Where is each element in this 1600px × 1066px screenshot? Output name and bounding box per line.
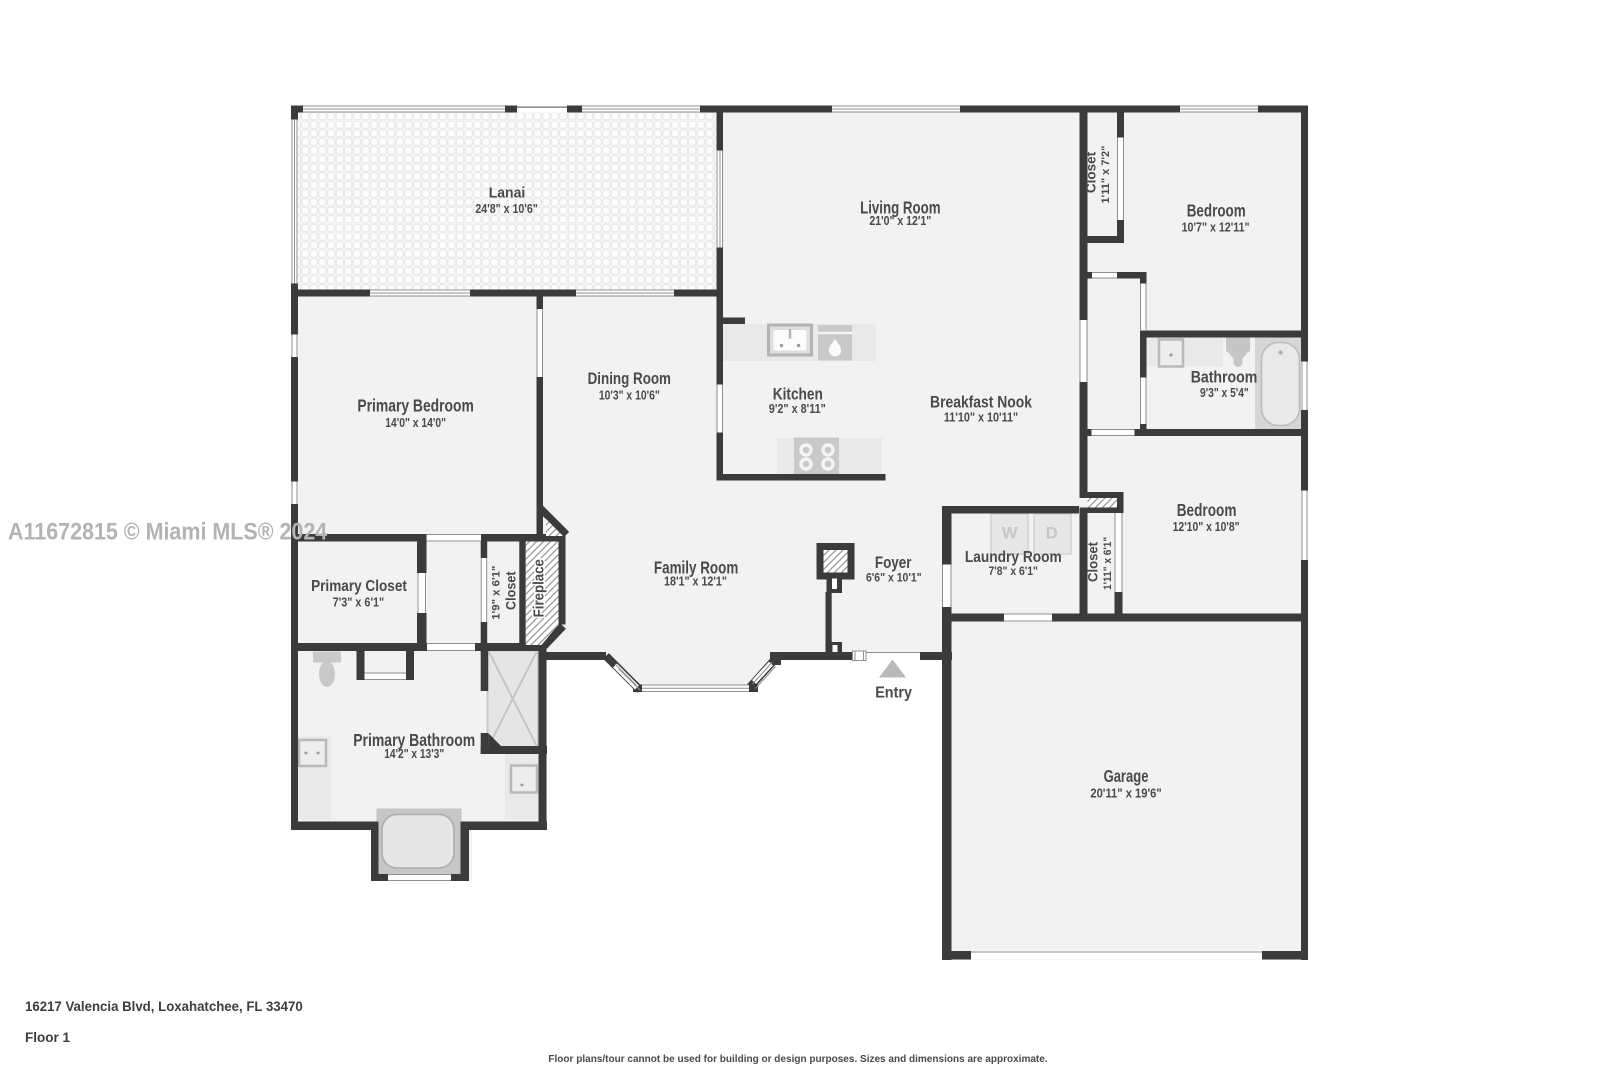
svg-text:Fireplace: Fireplace: [531, 559, 548, 617]
svg-text:20'11" x 19'6": 20'11" x 19'6": [1090, 786, 1161, 801]
svg-text:Floor 1: Floor 1: [25, 1030, 70, 1045]
svg-text:Bedroom: Bedroom: [1177, 501, 1237, 520]
svg-text:18'1" x 12'1": 18'1" x 12'1": [664, 575, 727, 589]
svg-text:W: W: [1002, 525, 1018, 543]
svg-text:14'2" x 13'3": 14'2" x 13'3": [384, 748, 444, 761]
svg-text:Closet: Closet: [503, 571, 518, 610]
svg-text:12'10" x 10'8": 12'10" x 10'8": [1173, 521, 1240, 534]
svg-text:Primary Bedroom: Primary Bedroom: [357, 396, 473, 416]
svg-text:24'8" x 10'6": 24'8" x 10'6": [475, 201, 537, 216]
svg-text:7'8" x 6'1": 7'8" x 6'1": [988, 566, 1037, 579]
svg-text:Floor plans/tour cannot be use: Floor plans/tour cannot be used for buil…: [548, 1054, 1047, 1065]
svg-text:1'11" x 7'2": 1'11" x 7'2": [1100, 146, 1112, 204]
svg-text:11'10" x 10'11": 11'10" x 10'11": [944, 411, 1018, 425]
svg-text:Closet: Closet: [1085, 541, 1100, 582]
svg-text:A11672815 © Miami MLS® 2024: A11672815 © Miami MLS® 2024: [8, 517, 328, 544]
svg-text:Dining Room: Dining Room: [588, 370, 671, 389]
svg-text:Foyer: Foyer: [875, 554, 912, 573]
svg-text:7'3" x 6'1": 7'3" x 6'1": [333, 596, 385, 610]
svg-text:Bedroom: Bedroom: [1187, 202, 1246, 221]
svg-text:21'0" x 12'1": 21'0" x 12'1": [869, 215, 931, 228]
svg-text:Entry: Entry: [875, 684, 912, 702]
svg-text:Laundry Room: Laundry Room: [965, 549, 1062, 566]
svg-text:10'7" x 12'11": 10'7" x 12'11": [1182, 221, 1250, 235]
svg-text:1'11" x 6'1": 1'11" x 6'1": [1101, 537, 1113, 590]
svg-text:9'3" x 5'4": 9'3" x 5'4": [1200, 387, 1249, 400]
svg-text:Garage: Garage: [1104, 767, 1149, 786]
svg-text:9'2" x 8'11": 9'2" x 8'11": [769, 402, 826, 416]
svg-text:6'6" x 10'1": 6'6" x 10'1": [866, 572, 922, 585]
svg-text:Kitchen: Kitchen: [773, 385, 823, 404]
svg-text:Breakfast Nook: Breakfast Nook: [930, 393, 1032, 412]
svg-text:1'9" x 6'1": 1'9" x 6'1": [491, 566, 503, 620]
svg-text:16217 Valencia Blvd, Loxahatch: 16217 Valencia Blvd, Loxahatchee, FL 334…: [25, 999, 303, 1014]
svg-text:Closet: Closet: [1084, 151, 1099, 193]
svg-text:10'3" x 10'6": 10'3" x 10'6": [599, 390, 660, 403]
svg-text:14'0" x 14'0": 14'0" x 14'0": [385, 417, 446, 430]
svg-text:Lanai: Lanai: [489, 185, 525, 202]
svg-text:D: D: [1046, 525, 1058, 543]
svg-text:Bathroom: Bathroom: [1191, 368, 1258, 386]
svg-text:Primary Closet: Primary Closet: [311, 578, 407, 595]
